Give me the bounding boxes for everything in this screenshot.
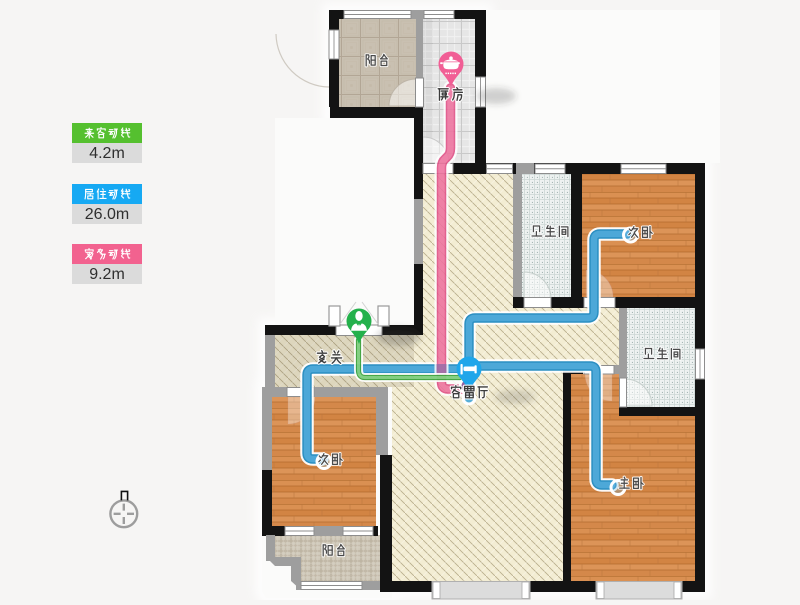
svg-text:4.2m: 4.2m (89, 145, 125, 162)
svg-text:9.2m: 9.2m (89, 266, 125, 283)
svg-text:26.0m: 26.0m (85, 206, 129, 223)
